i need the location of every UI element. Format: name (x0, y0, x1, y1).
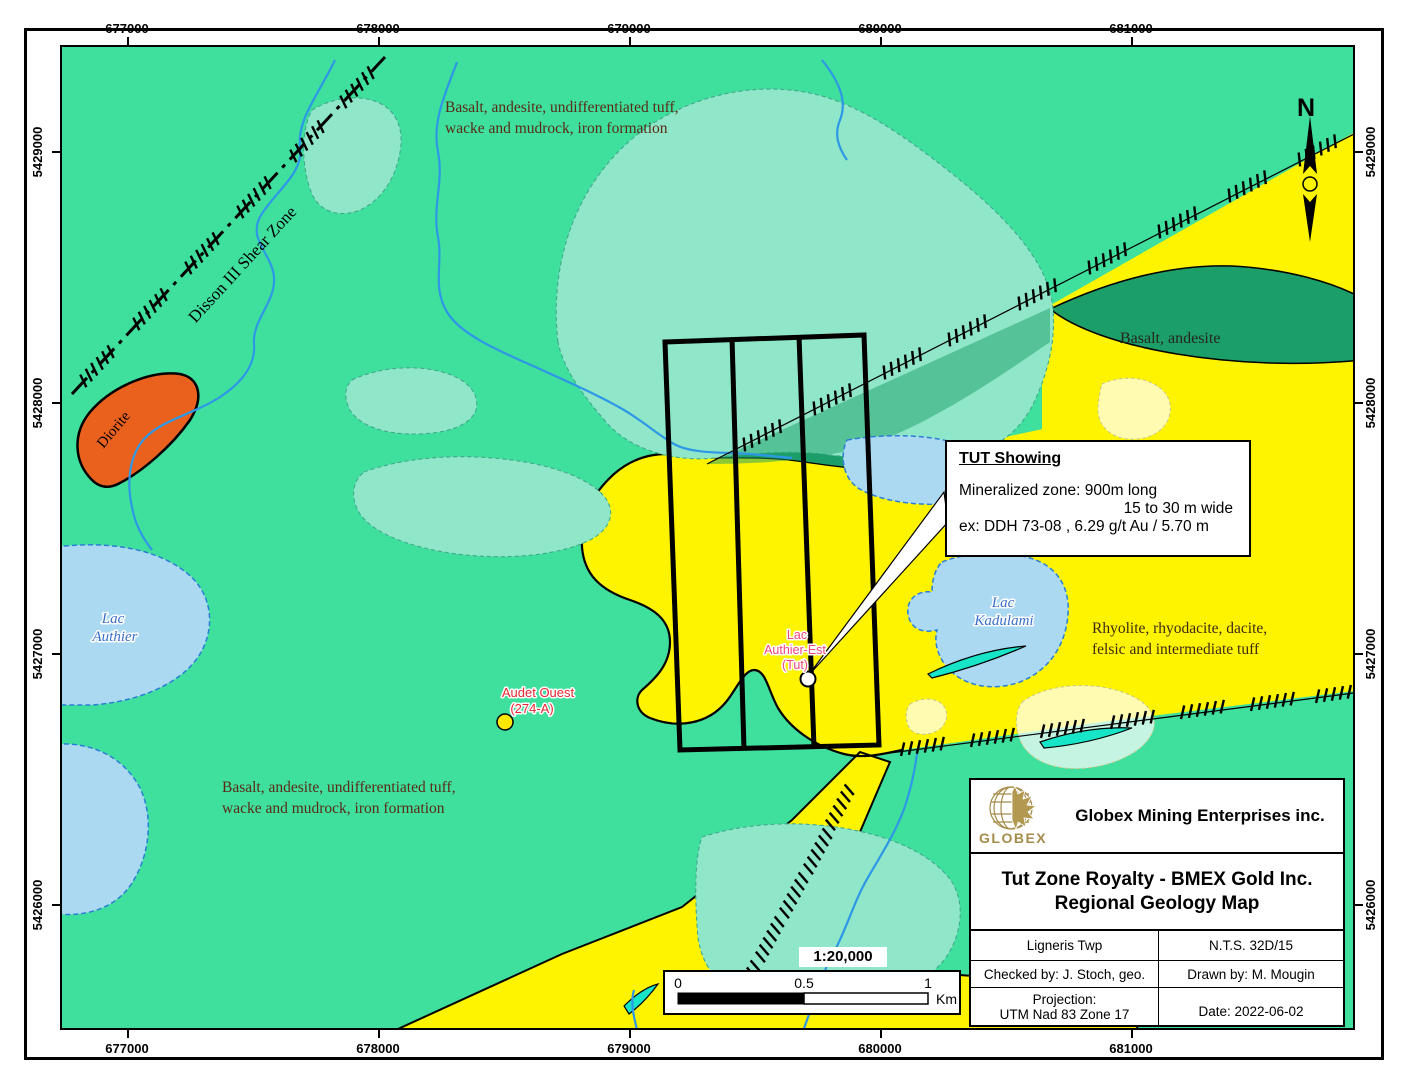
map-title-line1: Tut Zone Royalty - BMEX Gold Inc. (971, 868, 1343, 892)
title-block-header: GLOBEX Globex Mining Enterprises inc. (971, 780, 1343, 854)
coord-top-5: 681000 (1101, 22, 1161, 36)
lac-kadulami-label-line2: Kadulami (973, 613, 1033, 629)
callout-line2: 15 to 30 m wide (959, 500, 1233, 518)
coord-bottom-1: 677000 (97, 1042, 157, 1056)
coord-right-1: 5429000 (1364, 122, 1378, 182)
coord-bottom-5: 681000 (1101, 1042, 1161, 1056)
map-title: Tut Zone Royalty - BMEX Gold Inc. Region… (971, 854, 1343, 931)
lac-authier-label-line1: Lac (101, 611, 125, 627)
maple-leaf-icon (1012, 786, 1036, 830)
coord-top-2: 678000 (348, 22, 408, 36)
scale-bar: 0 0.5 1 Km (663, 970, 961, 1015)
projection-label: Projection: (1033, 992, 1097, 1007)
map-sheet: N Basalt, andesite, undifferentiated tuf… (0, 0, 1408, 1088)
unit-label-basalt-tuff-north-line2: wacke and mudrock, iron formation (445, 120, 668, 137)
tut-label-line3: (Tut) (782, 658, 808, 672)
scale-tick-1: 1 (924, 975, 932, 991)
company-name: Globex Mining Enterprises inc. (1063, 806, 1343, 826)
checked-by-cell: Checked by: J. Stoch, geo. (971, 961, 1159, 988)
tut-showing-marker (801, 672, 816, 687)
unit-label-basalt-andesite: Basalt, andesite (1120, 330, 1220, 347)
coord-top-1: 677000 (97, 22, 157, 36)
logo-text: GLOBEX (979, 830, 1047, 846)
audet-ouest-label-line2: (274-A) (510, 701, 553, 716)
title-block: GLOBEX Globex Mining Enterprises inc. Tu… (969, 778, 1345, 1027)
coord-bottom-4: 680000 (850, 1042, 910, 1056)
lac-authier-label-line2: Authier (92, 629, 138, 645)
coord-bottom-2: 678000 (348, 1042, 408, 1056)
scale-tick-0: 0 (674, 975, 682, 991)
unit-label-basalt-tuff-north-line1: Basalt, andesite, undifferentiated tuff, (445, 99, 679, 116)
callout-line1: Mineralized zone: 900m long (959, 482, 1237, 500)
scale-unit: Km (936, 991, 957, 1007)
coord-left-1: 5429000 (31, 122, 45, 182)
drawn-by-cell: Drawn by: M. Mougin (1159, 961, 1343, 988)
map-title-line2: Regional Geology Map (971, 892, 1343, 916)
coord-right-4: 5426000 (1364, 875, 1378, 935)
coord-left-3: 5427000 (31, 624, 45, 684)
callout-line3: ex: DDH 73-08 , 6.29 g/t Au / 5.70 m (959, 518, 1237, 536)
township-cell: Ligneris Twp (971, 931, 1159, 961)
coord-bottom-3: 679000 (599, 1042, 659, 1056)
unit-label-basalt-tuff-south-line1: Basalt, andesite, undifferentiated tuff, (222, 779, 456, 796)
projection-value: UTM Nad 83 Zone 17 (1000, 1007, 1130, 1022)
scale-tick-half: 0.5 (794, 975, 814, 991)
unit-label-rhyolite-line1: Rhyolite, rhyodacite, dacite, (1092, 620, 1267, 637)
nts-cell: N.T.S. 32D/15 (1159, 931, 1343, 961)
audet-ouest-marker (497, 714, 513, 730)
tut-showing-callout: TUT Showing Mineralized zone: 900m long … (945, 440, 1251, 557)
unit-label-basalt-tuff-south-line2: wacke and mudrock, iron formation (222, 800, 445, 817)
title-block-details: Ligneris Twp N.T.S. 32D/15 Checked by: J… (971, 931, 1343, 1025)
unit-label-rhyolite-line2: felsic and intermediate tuff (1092, 641, 1260, 658)
callout-title: TUT Showing (959, 450, 1237, 468)
scale-ratio-label: 1:20,000 (799, 947, 887, 967)
coord-top-4: 680000 (850, 22, 910, 36)
tut-label-line1: Lac (787, 628, 807, 642)
tut-label-line2: Authier-Est (764, 643, 826, 657)
coord-right-3: 5427000 (1364, 624, 1378, 684)
coord-left-4: 5426000 (31, 875, 45, 935)
lac-kadulami-label-line1: Lac (991, 595, 1015, 611)
globex-logo: GLOBEX (971, 780, 1063, 852)
date-cell: Date: 2022-06-02 (1159, 988, 1343, 1025)
audet-ouest-label-line1: Audet Ouest (502, 685, 575, 700)
coord-left-2: 5428000 (31, 373, 45, 433)
projection-cell: Projection: UTM Nad 83 Zone 17 (971, 988, 1159, 1025)
coord-right-2: 5428000 (1364, 373, 1378, 433)
coord-top-3: 679000 (599, 22, 659, 36)
north-label: N (1297, 94, 1315, 122)
